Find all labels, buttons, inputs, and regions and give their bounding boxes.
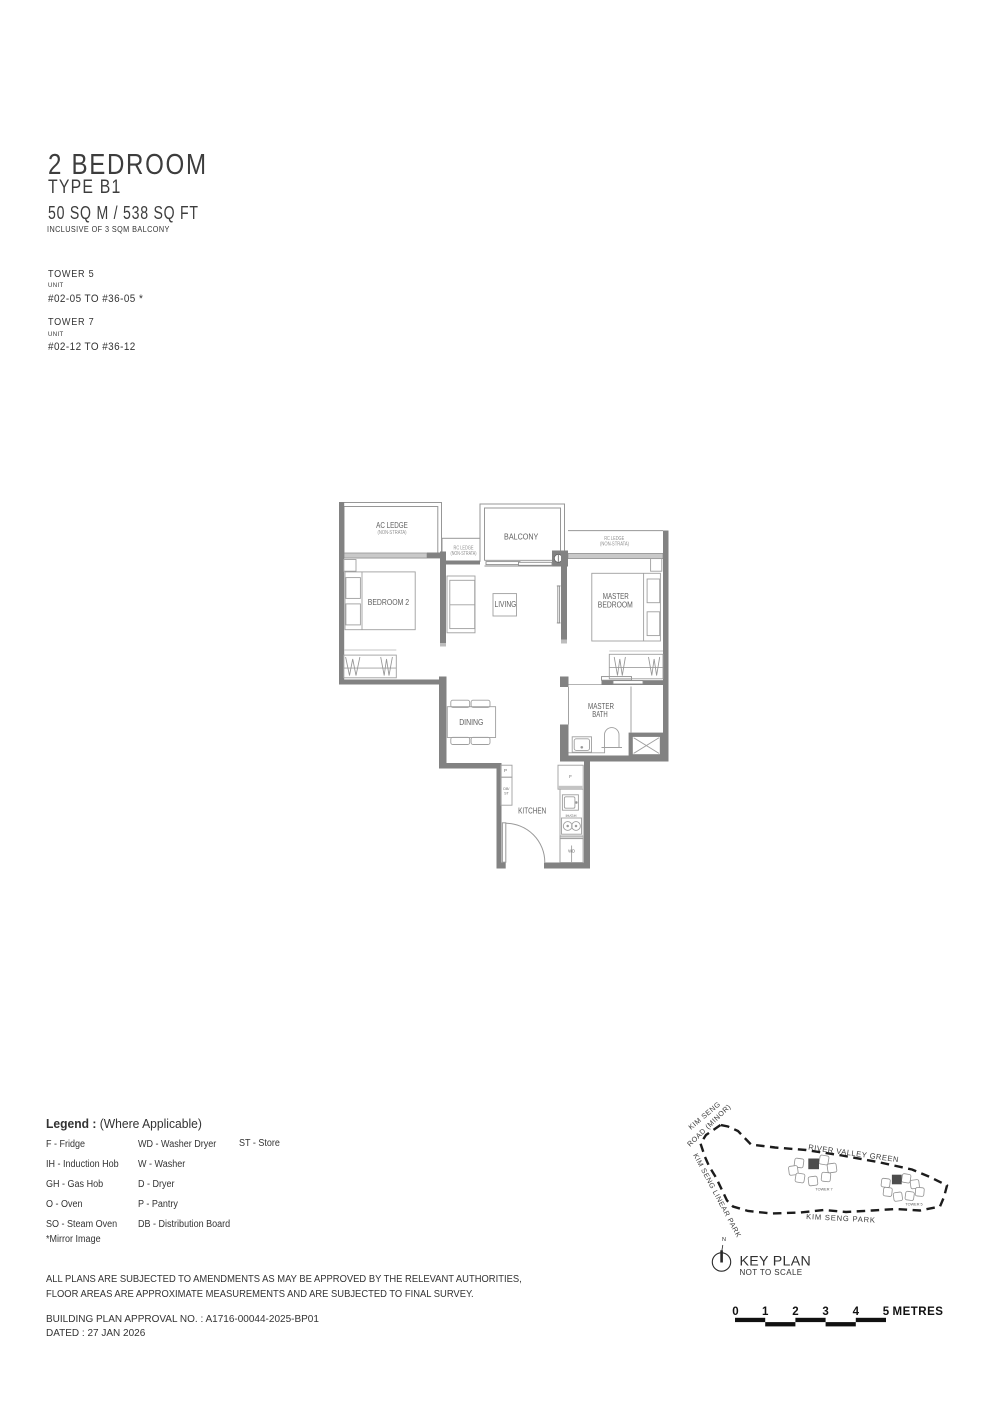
svg-text:5: 5 (883, 1306, 890, 1318)
svg-text:MASTER: MASTER (603, 592, 629, 601)
svg-text:KITCHEN: KITCHEN (518, 807, 546, 816)
svg-text:1: 1 (762, 1306, 769, 1318)
svg-text:3: 3 (822, 1306, 828, 1318)
svg-text:P: P (504, 768, 507, 773)
svg-text:F: F (569, 774, 572, 779)
svg-text:AC LEDGE: AC LEDGE (376, 521, 408, 530)
svg-text:IH/GH: IH/GH (565, 813, 576, 818)
svg-text:(NON-STRATA): (NON-STRATA) (600, 542, 629, 548)
svg-text:METRES: METRES (893, 1306, 944, 1318)
svg-text:BATH: BATH (592, 710, 608, 719)
svg-text:BALCONY: BALCONY (504, 533, 539, 542)
svg-text:0: 0 (732, 1306, 738, 1318)
svg-text:TOWER 7: TOWER 7 (815, 1188, 832, 1192)
svg-text:DINING: DINING (459, 718, 483, 727)
svg-text:DB/: DB/ (503, 787, 509, 791)
svg-text:KIM SENG LINEAR PARK: KIM SENG LINEAR PARK (691, 1152, 743, 1239)
svg-text:4: 4 (853, 1306, 860, 1318)
svg-text:WD: WD (568, 849, 575, 854)
svg-text:TOWER 5: TOWER 5 (905, 1203, 922, 1207)
svg-text:(NON-STRATA): (NON-STRATA) (451, 551, 477, 557)
svg-text:NOT TO SCALE: NOT TO SCALE (740, 1268, 803, 1277)
svg-text:BEDROOM: BEDROOM (598, 601, 633, 610)
svg-text:LIVING: LIVING (495, 600, 517, 609)
svg-text:ST: ST (504, 792, 509, 796)
svg-text:(NON-STRATA): (NON-STRATA) (378, 530, 407, 536)
svg-text:BEDROOM 2: BEDROOM 2 (368, 598, 410, 607)
svg-text:N: N (722, 1237, 726, 1243)
svg-text:2: 2 (792, 1306, 798, 1318)
svg-text:KIM SENG PARK: KIM SENG PARK (806, 1212, 876, 1225)
